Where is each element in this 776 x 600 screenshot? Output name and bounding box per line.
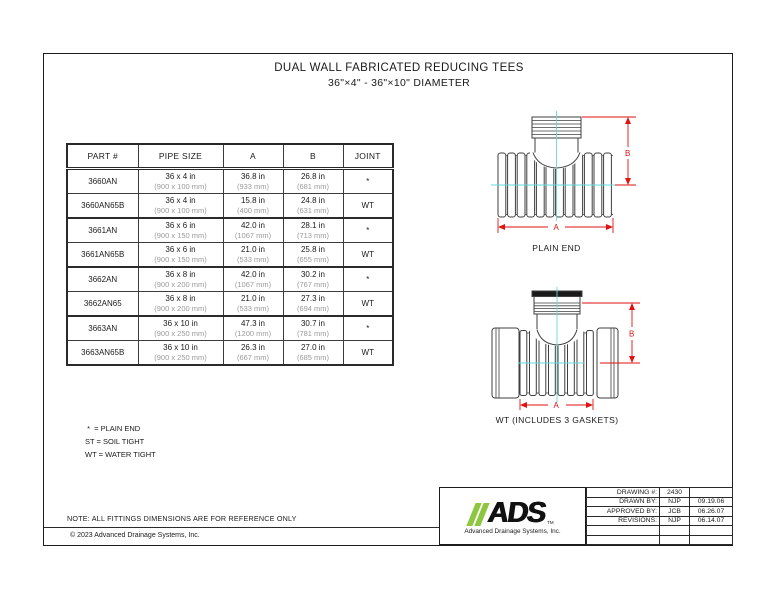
drawing-sheet: DUAL WALL FABRICATED REDUCING TEES 36"×4… <box>0 0 776 600</box>
titleblock-row: DRAWN BY: NJP 09.19.06 <box>587 497 733 507</box>
part-number: 3660AN <box>67 169 138 194</box>
joint-type: * <box>343 169 393 194</box>
legend-plain-end: * = PLAIN END <box>85 422 156 435</box>
reference-note: NOTE: ALL FITTINGS DIMENSIONS ARE FOR RE… <box>67 514 297 523</box>
col-b: B <box>283 144 343 169</box>
joint-type: WT <box>343 292 393 317</box>
col-a: A <box>223 144 283 169</box>
col-part: PART # <box>67 144 138 169</box>
part-number: 3663AN65B <box>67 341 138 366</box>
table-row: 3661AN 36 x 6 in(900 x 150 mm) 42.0 in(1… <box>67 218 393 243</box>
titleblock-row <box>587 535 733 545</box>
spec-table: PART # PIPE SIZE A B JOINT 3660AN 36 x 4… <box>66 143 394 366</box>
joint-type: * <box>343 316 393 341</box>
legend-soil-tight: ST = SOIL TIGHT <box>85 435 156 448</box>
col-joint: JOINT <box>343 144 393 169</box>
part-number: 3663AN <box>67 316 138 341</box>
part-number: 3661AN <box>67 218 138 243</box>
spec-header-row: PART # PIPE SIZE A B JOINT <box>67 144 393 169</box>
ads-logo: ADS TM <box>471 498 553 526</box>
joint-legend: * = PLAIN END ST = SOIL TIGHT WT = WATER… <box>85 422 156 461</box>
joint-type: * <box>343 218 393 243</box>
titleblock-row: APPROVED BY: JCB 06.26.07 <box>587 507 733 517</box>
approved-by-label: APPROVED BY: <box>587 507 660 517</box>
title-line2: 36"×4" - 36"×10" DIAMETER <box>66 77 732 89</box>
trademark-symbol: TM <box>547 520 554 525</box>
dim-b-label: B <box>625 149 630 158</box>
drawing-number-value: 2430 <box>660 488 690 498</box>
table-row: 3660AN65B 36 x 4 in(900 x 100 mm) 15.8 i… <box>67 194 393 219</box>
dimension-a: A <box>498 218 613 233</box>
title-line1: DUAL WALL FABRICATED REDUCING TEES <box>66 62 732 74</box>
part-number: 3661AN65B <box>67 243 138 268</box>
table-row: 3660AN 36 x 4 in(900 x 100 mm) 36.8 in(9… <box>67 169 393 194</box>
titleblock-row: REVISIONS: NJP 06.14.07 <box>587 516 733 526</box>
dimension-a: A <box>520 399 593 410</box>
copyright-divider <box>44 527 439 528</box>
table-row: 3662AN 36 x 8 in(900 x 200 mm) 42.0 in(1… <box>67 267 393 292</box>
titleblock-row: DRAWING #: 2430 <box>587 488 733 498</box>
approved-by-value: JCB <box>660 507 690 517</box>
logo-wordmark: ADS <box>487 501 547 526</box>
drawing-title: DUAL WALL FABRICATED REDUCING TEES 36"×4… <box>66 62 732 89</box>
legend-water-tight: WT = WATER TIGHT <box>85 448 156 461</box>
title-block-table: DRAWING #: 2430 DRAWN BY: NJP 09.19.06 A… <box>586 487 733 545</box>
joint-type: WT <box>343 194 393 219</box>
plain-end-tee-diagram: B A PLAIN END <box>478 106 656 258</box>
drawing-number-label: DRAWING #: <box>587 488 660 498</box>
drawn-by-label: DRAWN BY: <box>587 497 660 507</box>
dim-a-label: A <box>554 223 560 232</box>
tee-body <box>498 152 613 217</box>
joint-type: WT <box>343 243 393 268</box>
table-row: 3663AN65B 36 x 10 in(900 x 250 mm) 26.3 … <box>67 341 393 366</box>
water-tight-caption: WT (INCLUDES 3 GASKETS) <box>496 415 619 425</box>
water-tight-tee-diagram: B A WT (INCLUDES 3 GASKETS) <box>478 283 656 429</box>
table-row: 3661AN65B 36 x 6 in(900 x 150 mm) 21.0 i… <box>67 243 393 268</box>
drawn-by-value: NJP <box>660 497 690 507</box>
part-number: 3662AN <box>67 267 138 292</box>
revisions-value: NJP <box>660 516 690 526</box>
table-row: 3662AN65 36 x 8 in(900 x 200 mm) 21.0 in… <box>67 292 393 317</box>
part-number: 3660AN65B <box>67 194 138 219</box>
dim-a-label: A <box>554 401 560 410</box>
joint-type: * <box>343 267 393 292</box>
titleblock-row <box>587 526 733 536</box>
copyright-text: © 2023 Advanced Drainage Systems, Inc. <box>70 532 200 539</box>
revisions-label: REVISIONS: <box>587 516 660 526</box>
drawn-by-date: 09.19.06 <box>690 497 733 507</box>
table-row: 3663AN 36 x 10 in(900 x 250 mm) 47.3 in(… <box>67 316 393 341</box>
joint-type: WT <box>343 341 393 366</box>
dim-b-label: B <box>629 330 634 339</box>
col-pipe-size: PIPE SIZE <box>138 144 223 169</box>
ads-logo-box: ADS TM Advanced Drainage Systems, Inc. <box>439 487 586 545</box>
approved-by-date: 06.26.07 <box>690 507 733 517</box>
part-number: 3662AN65 <box>67 292 138 317</box>
revisions-date: 06.14.07 <box>690 516 733 526</box>
plain-end-caption: PLAIN END <box>532 243 580 253</box>
